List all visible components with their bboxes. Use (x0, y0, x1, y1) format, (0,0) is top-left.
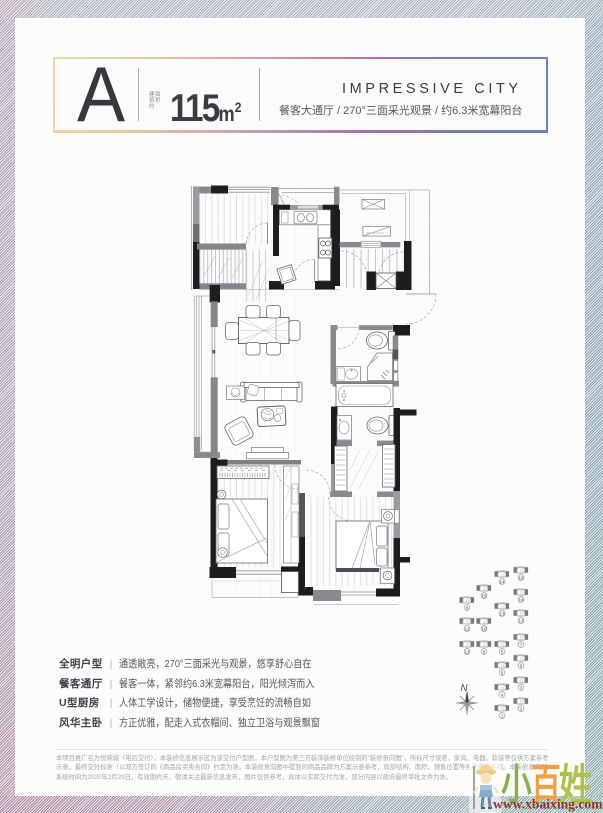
svg-text:www.xbaixing.com: www.xbaixing.com (493, 797, 603, 812)
